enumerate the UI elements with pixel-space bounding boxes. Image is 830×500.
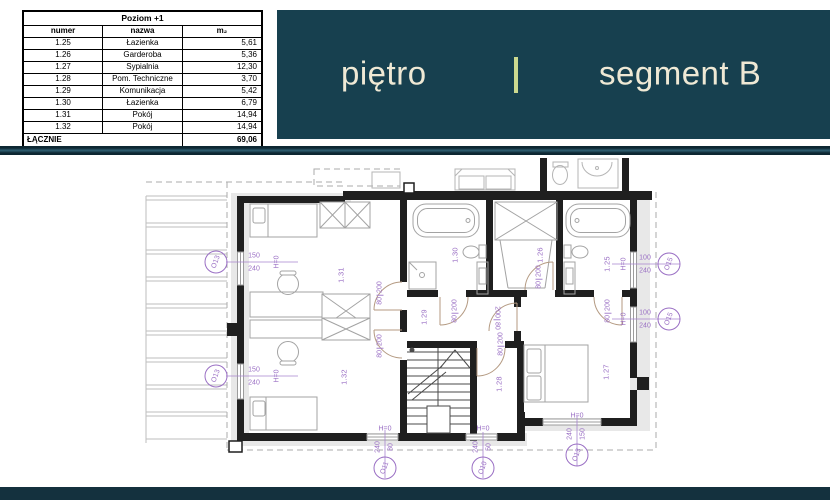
door-size-label: 80200	[377, 334, 384, 357]
room-area: 5,36	[182, 50, 262, 62]
table-row: 1.30Łazienka6,79	[23, 98, 262, 110]
window-dim: 240	[248, 266, 260, 273]
room-label: 1.29	[420, 309, 428, 325]
column-header: nazwa	[103, 26, 183, 38]
window-height: H=0	[621, 312, 628, 325]
window-dim: 240	[375, 441, 382, 453]
window-height: H=0	[476, 426, 489, 433]
window-height: H=0	[621, 257, 628, 270]
room-number: 1.25	[23, 38, 103, 50]
table-row: 1.27Sypialnia12,30	[23, 62, 262, 74]
room-area: 3,70	[182, 74, 262, 86]
room-name: Sypialnia	[103, 62, 183, 74]
door-size-label: 80200	[605, 299, 612, 322]
column-header: numer	[23, 26, 103, 38]
room-area: 6,79	[182, 98, 262, 110]
area-table: Poziom +1 numernazwam₂ 1.25Łazienka5,611…	[22, 10, 263, 148]
window-circle: O10	[472, 457, 495, 480]
room-area: 14,94	[182, 110, 262, 122]
window-circle: O15	[658, 308, 681, 331]
table-row: 1.26Garderoba5,36	[23, 50, 262, 62]
room-area: 12,30	[182, 62, 262, 74]
room-name: Garderoba	[103, 50, 183, 62]
room-number: 1.31	[23, 110, 103, 122]
room-label: 1.31	[337, 267, 345, 283]
room-name: Pokój	[103, 110, 183, 122]
banner-separator: |	[514, 57, 518, 93]
room-number: 1.29	[23, 86, 103, 98]
window-dim: 150	[248, 367, 260, 374]
total-label: ŁĄCZNIE	[23, 134, 182, 148]
table-title: Poziom +1	[23, 11, 262, 26]
door-size-label: 80200	[452, 299, 459, 322]
room-number: 1.27	[23, 62, 103, 74]
window-dim: 240	[473, 441, 480, 453]
window-dim: 150	[580, 428, 587, 440]
window-dim: 80	[388, 443, 395, 451]
bottom-bar	[0, 487, 830, 500]
window-height: H=0	[274, 369, 281, 382]
window-dim: 240	[567, 428, 574, 440]
title-banner: piętro | segment B	[277, 10, 830, 139]
room-label: 1.32	[340, 369, 348, 385]
door-size-label: 80200	[498, 332, 505, 355]
room-name: Komunikacja	[103, 86, 183, 98]
window-dim: 240	[639, 323, 651, 330]
room-number: 1.32	[23, 122, 103, 134]
banner-left-text: piętro	[341, 54, 427, 92]
window-dim: 240	[248, 380, 260, 387]
window-dim: 150	[248, 253, 260, 260]
table-row: 1.31Pokój14,94	[23, 110, 262, 122]
window-height: H=0	[378, 426, 391, 433]
room-number: 1.30	[23, 98, 103, 110]
door-size-label: 80200	[377, 281, 384, 304]
room-area: 5,61	[182, 38, 262, 50]
room-label: 1.27	[602, 364, 610, 380]
window-height: H=0	[570, 413, 583, 420]
room-label: 1.28	[495, 376, 503, 392]
total-value: 69,06	[182, 134, 262, 148]
room-name: Łazienka	[103, 38, 183, 50]
window-dim: 100	[639, 255, 651, 262]
room-label: 1.25	[603, 256, 611, 272]
window-circle: O11	[374, 457, 397, 480]
room-name: Pokój	[103, 122, 183, 134]
window-dim: 240	[639, 268, 651, 275]
window-circle: O15	[658, 253, 681, 276]
column-header: m₂	[182, 26, 262, 38]
window-circle: O13	[566, 444, 589, 467]
room-number: 1.28	[23, 74, 103, 86]
window-circle: O13	[205, 365, 228, 388]
window-dim: 50	[486, 443, 493, 451]
room-name: Pom. Techniczne	[103, 74, 183, 86]
room-area: 14,94	[182, 122, 262, 134]
door-size-label: 20080	[494, 306, 501, 329]
door-size-label: 80200	[536, 265, 543, 288]
window-circle: O13	[205, 251, 228, 274]
window-height: H=0	[274, 255, 281, 268]
table-row: 1.29Komunikacja5,42	[23, 86, 262, 98]
window-dim: 100	[639, 310, 651, 317]
table-row: 1.32Pokój14,94	[23, 122, 262, 134]
room-label: 1.26	[536, 247, 544, 263]
table-total-row: ŁĄCZNIE 69,06	[23, 134, 262, 148]
table-header-row: numernazwam₂	[23, 26, 262, 38]
room-number: 1.26	[23, 50, 103, 62]
table-row: 1.25Łazienka5,61	[23, 38, 262, 50]
table-row: 1.28Pom. Techniczne3,70	[23, 74, 262, 86]
divider-bar	[0, 146, 830, 155]
banner-right-text: segment B	[599, 54, 761, 92]
room-label: 1.30	[451, 247, 459, 263]
floorplan-sheet: 1.251.261.271.281.291.301.311.3280200802…	[0, 0, 830, 500]
room-name: Łazienka	[103, 98, 183, 110]
room-area: 5,42	[182, 86, 262, 98]
